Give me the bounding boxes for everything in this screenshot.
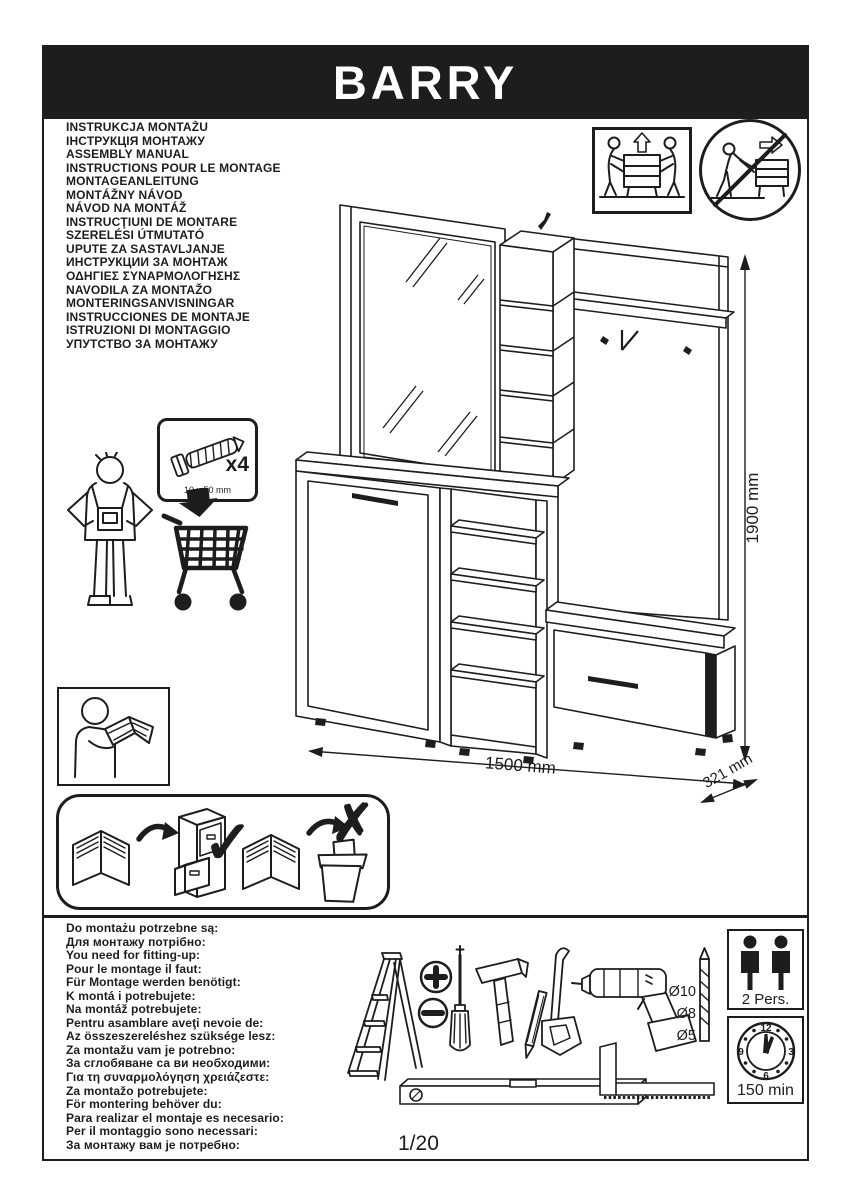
- stepladder-icon: [348, 953, 422, 1080]
- height-label: 1900 mm: [743, 473, 762, 544]
- mirror-panel: [340, 205, 505, 485]
- two-persons-icon: [729, 935, 802, 991]
- requirement-line: Για τη συναρμολόγηση χρειάζεστε:: [66, 1071, 284, 1085]
- screwdriver-icon: [450, 946, 470, 1051]
- person-reading-icon: [59, 689, 168, 784]
- language-line: INSTRUCTIONS POUR LE MONTAGE: [66, 162, 281, 176]
- drill-bit-icon: [700, 948, 709, 1041]
- language-line: INSTRUCCIONES DE MONTAJE: [66, 311, 281, 325]
- requirement-line: K montá i potrebujete:: [66, 990, 284, 1004]
- tools-illustration: Ø10 Ø8 Ø5: [342, 933, 722, 1138]
- requirement-line: Для монтажу потрібно:: [66, 936, 284, 950]
- language-line: ΟΔΗΓΙΕΣ ΣΥΝΑΡΜΟΛΟΓΗΣΗΣ: [66, 270, 281, 284]
- requirement-line: You need for fitting-up:: [66, 949, 284, 963]
- time-label: 150 min: [729, 1083, 802, 1098]
- hardware-quantity: x4: [226, 453, 249, 477]
- language-line: MONTERINGSANVISNINGAR: [66, 297, 281, 311]
- language-line: NAVODILA ZA MONTAŽO: [66, 284, 281, 298]
- time-badge: 12 3 6 9 150 min: [727, 1016, 804, 1104]
- mounting-clip-icon: [538, 212, 551, 230]
- section-divider: [42, 915, 809, 918]
- language-line: MONTAGEANLEITUNG: [66, 175, 281, 189]
- manual-page: BARRY INSTRUKCJA MONTAŻU ІНСТРУКЦІЯ МОНТ…: [0, 0, 849, 1200]
- clock-12: 12: [760, 1023, 772, 1034]
- requirement-line: Za montažu vam je potrebno:: [66, 1044, 284, 1058]
- depth-dimension: 321 mm: [700, 750, 758, 803]
- language-line: УПУТСТВО ЗА МОНТАЖУ: [66, 338, 281, 352]
- drill-size-label: Ø5: [677, 1028, 696, 1044]
- phillips-screw-icon: [421, 962, 451, 992]
- base-cabinet: [296, 471, 440, 748]
- requirement-line: Na montáž potrebujete:: [66, 1003, 284, 1017]
- keep-manual-strip: ✓ ✗: [56, 794, 390, 910]
- requirement-line: För montering behöver du:: [66, 1098, 284, 1112]
- requirement-line: Per il montaggio sono necessari:: [66, 1125, 284, 1139]
- language-line: INSTRUKCJA MONTAŻU: [66, 121, 281, 135]
- furniture-illustration: 1900 mm 1500 mm 321 mm: [288, 190, 770, 815]
- language-line: SZERELÉSI ÚTMUTATÓ: [66, 229, 281, 243]
- requirement-line: Az összeszereléshez szüksége lesz:: [66, 1030, 284, 1044]
- requirement-line: За сглобяване са ви необходими:: [66, 1057, 284, 1071]
- requirement-line: Para realizar el montaje es necesario:: [66, 1112, 284, 1126]
- cross-icon: ✗: [331, 797, 375, 853]
- clock-icon: 12 3 6 9: [733, 1020, 799, 1082]
- requirement-line: Für Montage werden benötigt:: [66, 976, 284, 990]
- language-line: ASSEMBLY MANUAL: [66, 148, 281, 162]
- persons-badge: 2 Pers.: [727, 929, 804, 1010]
- bench: [546, 602, 735, 756]
- language-line: ISTRUZIONI DI MONTAGGIO: [66, 324, 281, 338]
- language-line: UPUTE ZA SASTAVLJANJE: [66, 243, 281, 257]
- worker-figure-icon: [60, 452, 160, 614]
- requirement-line: Pentru asamblare aveţi nevoie de:: [66, 1017, 284, 1031]
- saw-icon: [542, 948, 581, 1055]
- height-dimension: 1900 mm: [740, 254, 762, 762]
- clock-9: 9: [738, 1047, 744, 1058]
- title-bar: BARRY: [42, 45, 809, 119]
- requirement-line: Za montažo potrebujete:: [66, 1085, 284, 1099]
- keep-discard-illustration: ✓ ✗: [59, 797, 387, 907]
- language-line: NÁVOD NA MONTÁŽ: [66, 202, 281, 216]
- persons-label: 2 Pers.: [729, 992, 802, 1007]
- clock-3: 3: [788, 1047, 794, 1058]
- requirement-line: Do montażu potrzebne są:: [66, 922, 284, 936]
- hammer-icon: [476, 959, 528, 1045]
- drill-size-label: Ø8: [677, 1006, 696, 1022]
- shoe-shelves: [440, 488, 547, 764]
- page-number: 1/20: [398, 1132, 439, 1156]
- shopping-cart-icon: [156, 506, 256, 614]
- read-manual-box: [57, 687, 170, 786]
- clock-6: 6: [763, 1071, 769, 1082]
- requirement-line: Pour le montage il faut:: [66, 963, 284, 977]
- shelf-column: [500, 212, 574, 485]
- product-title: BARRY: [333, 55, 518, 110]
- language-line: ІНСТРУКЦІЯ МОНТАЖУ: [66, 135, 281, 149]
- slotted-screw-icon: [419, 999, 447, 1027]
- language-line: ИНСТРУКЦИИ ЗА МОНТАЖ: [66, 256, 281, 270]
- language-list: INSTRUKCJA MONTAŻU ІНСТРУКЦІЯ МОНТАЖУ AS…: [66, 121, 281, 351]
- drill-size-label: Ø10: [669, 984, 696, 1000]
- requirements-list: Do montażu potrzebne są: Для монтажу пот…: [66, 922, 284, 1152]
- manual-book-icon: [73, 831, 129, 885]
- requirement-line: За монтажу вам је потребно:: [66, 1139, 284, 1153]
